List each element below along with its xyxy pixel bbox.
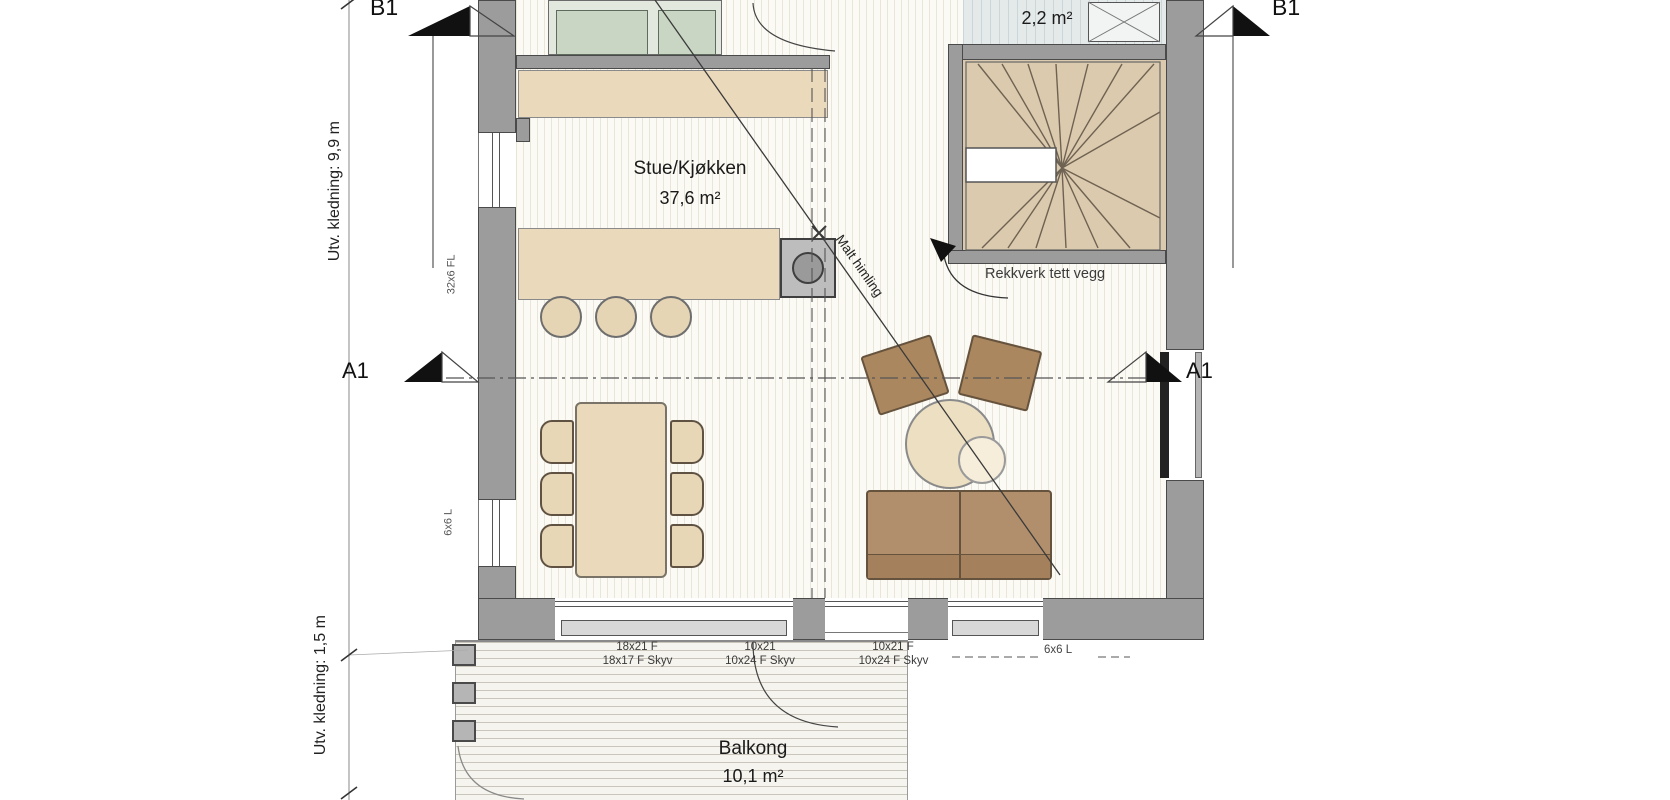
window-type-3: 10x24 F Skyv [826, 655, 961, 668]
window-left-lower [478, 500, 516, 566]
glazing-lines [948, 601, 1043, 607]
balcony-area: 10,1 m² [673, 766, 833, 787]
section-label-b1-right: B1 [1272, 0, 1300, 20]
bar-stool [540, 296, 582, 338]
dining-chair [670, 420, 704, 464]
dimension-line-left [349, 0, 468, 800]
cooktop-burner [792, 252, 824, 284]
stair-wall-bottom [948, 250, 1166, 264]
exterior-wall-left [478, 207, 516, 500]
stair-area-floor [963, 60, 1166, 252]
wc-area: 2,2 m² [987, 8, 1107, 29]
lintel-note: 6x6 L [1044, 644, 1072, 657]
living-room-label: Stue/Kjøkken [580, 158, 800, 180]
sliding-door-opening-left [555, 598, 793, 640]
cladding-dimension-lower: Utv. kledning: 1,5 m [312, 575, 330, 795]
side-table [958, 436, 1006, 484]
window-glazing-dark [1160, 352, 1169, 478]
balcony-post [452, 720, 476, 742]
window-glazing [492, 500, 500, 566]
section-label-a1-right: A1 [1186, 358, 1213, 383]
window-code-3: 10x21 F [833, 641, 953, 654]
window-type-1: 18x17 F Skyv [565, 655, 710, 668]
kitchen-cabinet-left [556, 10, 648, 55]
window-glazing [492, 133, 500, 207]
kitchen-partition-wall [516, 55, 830, 69]
wall-nib [516, 118, 530, 142]
section-label-b1-left: B1 [370, 0, 398, 20]
dining-chair [540, 420, 574, 464]
living-room-area: 37,6 m² [580, 188, 800, 209]
balcony-label: Balkong [673, 738, 833, 760]
threshold-line [825, 632, 908, 633]
sofa-cushion-divider [959, 492, 961, 578]
window-sill [561, 620, 787, 636]
kitchen-island [518, 228, 780, 300]
window-type-2: 10x24 F Skyv [695, 655, 825, 668]
wc-wall-bottom [948, 44, 1166, 60]
bar-stool [595, 296, 637, 338]
exterior-wall-right [1166, 0, 1204, 350]
balcony-post [452, 682, 476, 704]
beam-note-upper: 32x6 FL [446, 234, 459, 314]
bar-stool [650, 296, 692, 338]
wc-label: WC [987, 0, 1107, 6]
window-sill [952, 620, 1039, 636]
dining-chair [670, 472, 704, 516]
cladding-dimension-upper: Utv. kledning: 9,9 m [326, 81, 344, 301]
window-code-1: 18x21 F [572, 641, 702, 654]
dining-table [575, 402, 667, 578]
section-arrow-b1-right-icon [1196, 6, 1270, 268]
balcony-post [452, 644, 476, 666]
sofa [866, 490, 1052, 580]
glazing-lines [825, 601, 908, 607]
section-label-a1-left: A1 [342, 358, 369, 383]
window-opening-right [948, 598, 1043, 640]
kitchen-cabinet-right [658, 10, 716, 55]
window-code-2: 10x21 [700, 641, 820, 654]
dining-chair [540, 524, 574, 568]
glazing-lines [555, 601, 793, 607]
stair-hall-wall-left [948, 44, 963, 264]
dining-chair [540, 472, 574, 516]
dining-chair [670, 524, 704, 568]
railing-note: Rekkverk tett vegg [985, 266, 1105, 283]
kitchen-counter-band [518, 70, 828, 118]
balcony-door-opening [825, 598, 908, 640]
window-left-upper [478, 133, 516, 207]
beam-note-lower: 6x6 L [443, 482, 456, 562]
exterior-wall-left [478, 0, 516, 133]
section-arrow-a1-left-icon [404, 352, 478, 382]
floor-plan-canvas: Stue/Kjøkken 37,6 m² WC 2,2 m² Balkong 1… [0, 0, 1670, 800]
